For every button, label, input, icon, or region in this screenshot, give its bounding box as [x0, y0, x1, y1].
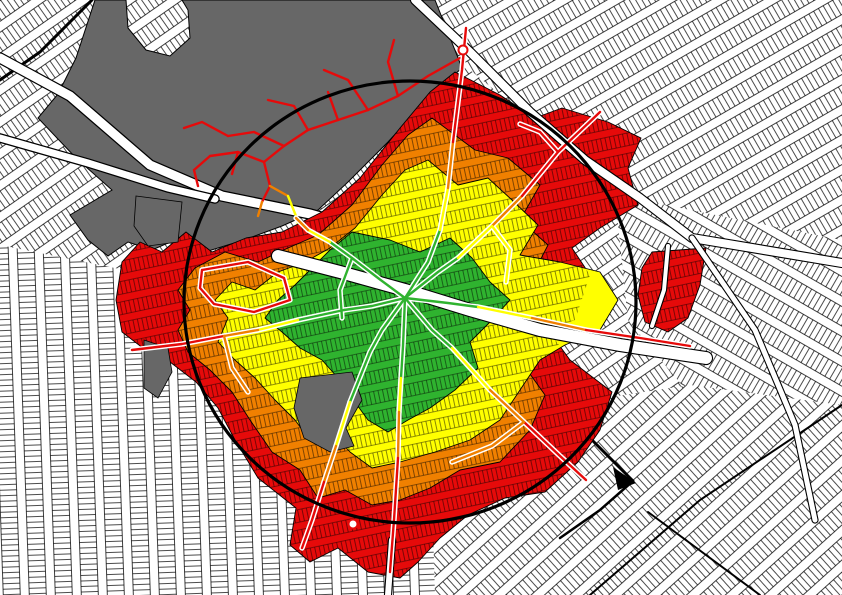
map-canvas: [0, 0, 842, 595]
dead-end-bulb-north: [459, 46, 468, 55]
map-viewport: [0, 0, 842, 595]
radial-south: [398, 412, 399, 458]
dead-end-bulb-south: [349, 520, 358, 529]
